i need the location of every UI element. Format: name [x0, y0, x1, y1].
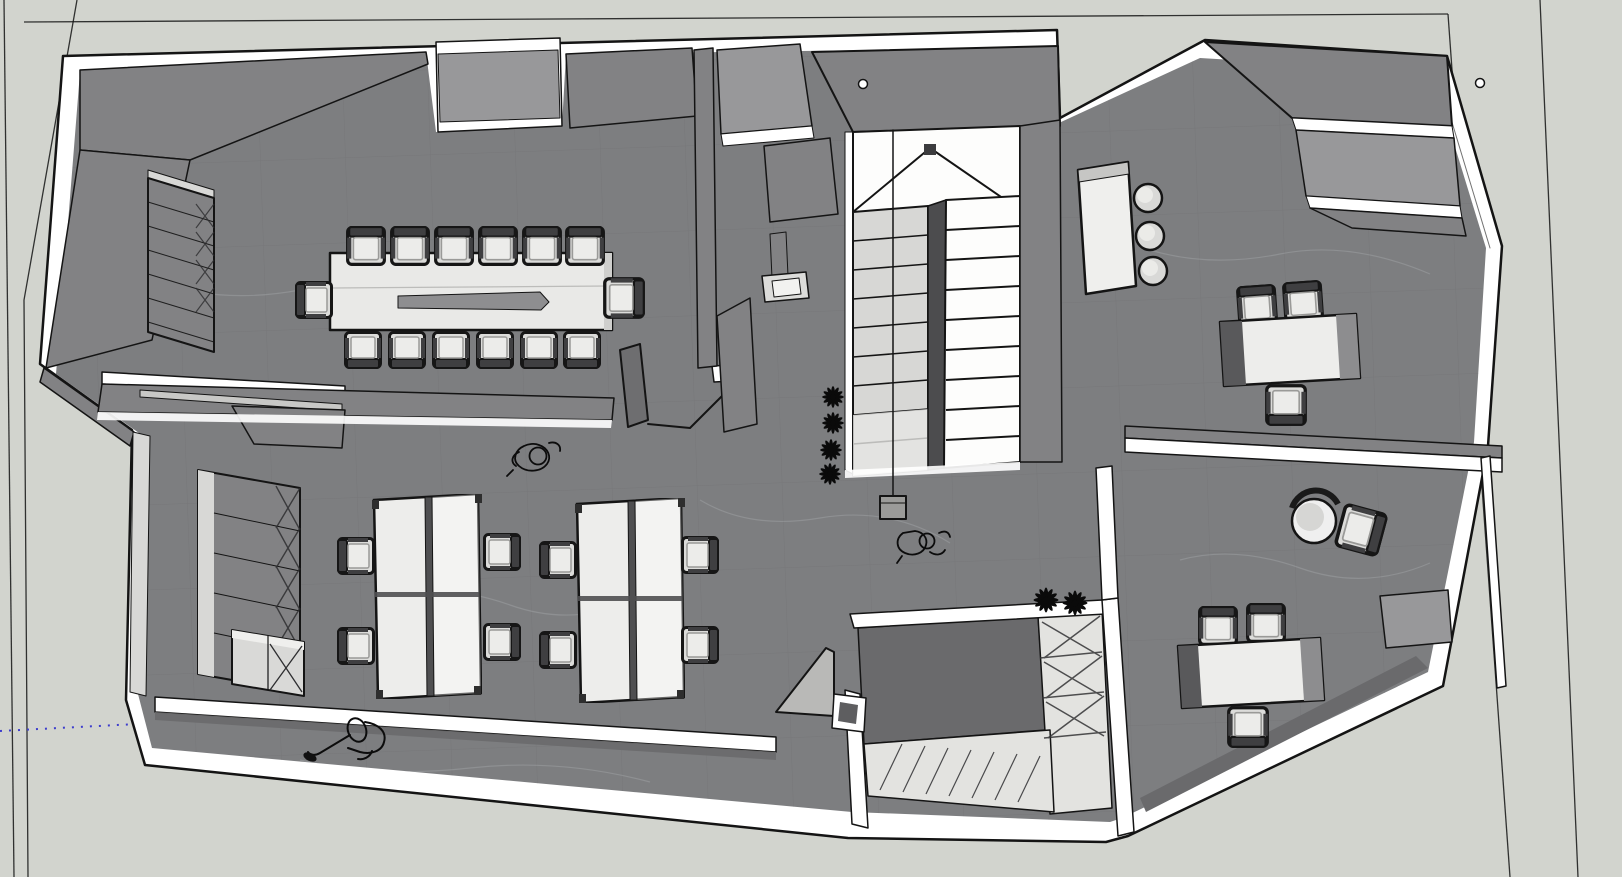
chair[interactable]: [540, 542, 576, 578]
pendant-light[interactable]: [880, 496, 906, 519]
stair-roof-slab: [812, 46, 1060, 132]
roof-slab-2: [1296, 130, 1460, 206]
chair[interactable]: [338, 628, 374, 664]
restroom-wall: [694, 48, 717, 368]
office-desk[interactable]: [1220, 314, 1360, 386]
chair[interactable]: [1247, 604, 1285, 641]
chair[interactable]: [433, 333, 469, 369]
model-viewport[interactable]: [0, 0, 1622, 877]
stairwell[interactable]: [812, 46, 1062, 519]
chair[interactable]: [566, 227, 604, 264]
cabinet-edge: [198, 470, 214, 677]
recess-roof-slab: [438, 50, 560, 122]
chair[interactable]: [347, 227, 385, 264]
bar-counter[interactable]: [1078, 162, 1136, 294]
viewport-canvas[interactable]: [0, 0, 1622, 877]
chair[interactable]: [479, 227, 517, 264]
office-desk[interactable]: [1178, 638, 1324, 708]
desk-end-panel: [1220, 321, 1246, 386]
chair[interactable]: [540, 632, 576, 668]
left-flight-lower: [853, 409, 928, 476]
pendant-shade: [880, 496, 906, 519]
restroom-wall-4: [717, 298, 757, 432]
stair-flight-right[interactable]: [944, 196, 1020, 468]
chair[interactable]: [1199, 607, 1237, 644]
restroom-wall-2: [764, 138, 838, 222]
desk-end-panel: [1336, 314, 1360, 379]
wall-shelf[interactable]: [148, 170, 214, 352]
desk-cluster[interactable]: [575, 498, 685, 703]
chair[interactable]: [477, 333, 513, 369]
chair[interactable]: [683, 537, 719, 573]
stair-east-wall: [1020, 120, 1062, 462]
north-wall-face-2: [566, 48, 697, 128]
restroom-wall-3: [770, 232, 788, 278]
desk-end-panel: [1300, 638, 1324, 701]
chair[interactable]: [485, 534, 521, 570]
chair[interactable]: [345, 333, 381, 369]
column-marker: [1476, 79, 1485, 88]
chair[interactable]: [391, 227, 429, 264]
desk-end-panel: [1178, 645, 1202, 708]
storage-interior: [858, 616, 1046, 744]
threshold-step: [838, 702, 858, 724]
low-cabinet[interactable]: [232, 630, 304, 696]
chair[interactable]: [296, 282, 332, 318]
chair[interactable]: [523, 227, 561, 264]
restroom-roof-slab: [717, 44, 812, 134]
column-marker: [859, 80, 868, 89]
west-wall-face-lower: [130, 432, 150, 696]
chair[interactable]: [1266, 386, 1306, 425]
chair[interactable]: [521, 333, 557, 369]
stool-highlight: [1142, 260, 1158, 276]
lounge-cushion: [1296, 503, 1324, 531]
chair[interactable]: [1335, 504, 1387, 557]
chair[interactable]: [564, 333, 600, 369]
chair[interactable]: [338, 538, 374, 574]
stool-highlight: [1139, 225, 1155, 241]
desk-cluster[interactable]: [372, 494, 482, 699]
shelf-body: [148, 178, 214, 352]
chair[interactable]: [485, 624, 521, 660]
open-office[interactable]: [198, 470, 718, 703]
chair[interactable]: [683, 627, 719, 663]
stair-west-band: [845, 132, 853, 474]
east-notch-slab: [1380, 590, 1452, 648]
newel-post: [924, 144, 936, 155]
sink-basin: [772, 278, 801, 297]
chair[interactable]: [1283, 281, 1323, 321]
chair[interactable]: [435, 227, 473, 264]
chair[interactable]: [1228, 708, 1268, 747]
chair[interactable]: [389, 333, 425, 369]
chair[interactable]: [605, 278, 644, 318]
stool-highlight: [1137, 187, 1153, 203]
